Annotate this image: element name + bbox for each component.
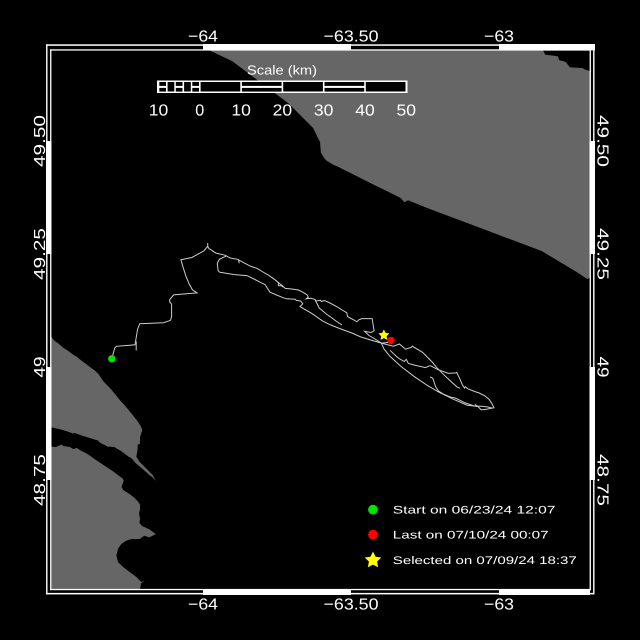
svg-text:30: 30 (314, 102, 334, 119)
svg-text:40: 40 (355, 102, 375, 119)
svg-text:Last on 07/10/24 00:07: Last on 07/10/24 00:07 (393, 529, 549, 541)
svg-text:49.50: 49.50 (594, 115, 611, 167)
svg-text:49: 49 (594, 357, 611, 378)
svg-text:−64: −64 (188, 29, 218, 46)
svg-text:20: 20 (273, 102, 293, 119)
svg-text:0: 0 (195, 102, 204, 119)
svg-text:−63: −63 (484, 29, 514, 46)
svg-text:−64: −64 (188, 596, 218, 613)
svg-text:48.75: 48.75 (32, 454, 49, 506)
svg-text:−63.50: −63.50 (324, 29, 379, 46)
svg-text:−63.50: −63.50 (324, 596, 379, 613)
svg-text:49: 49 (32, 356, 49, 377)
svg-text:Scale (km): Scale (km) (247, 63, 317, 78)
svg-text:49.25: 49.25 (594, 228, 611, 280)
svg-text:Selected on 07/09/24 18:37: Selected on 07/09/24 18:37 (393, 555, 577, 567)
svg-text:−63: −63 (484, 596, 514, 613)
svg-text:48.75: 48.75 (594, 454, 611, 506)
svg-text:10: 10 (149, 102, 169, 119)
svg-text:Start on 06/23/24 12:07: Start on 06/23/24 12:07 (393, 505, 556, 517)
svg-text:10: 10 (231, 102, 251, 119)
svg-text:49.25: 49.25 (32, 228, 49, 280)
svg-text:49.50: 49.50 (32, 115, 49, 167)
svg-text:50: 50 (397, 102, 417, 119)
